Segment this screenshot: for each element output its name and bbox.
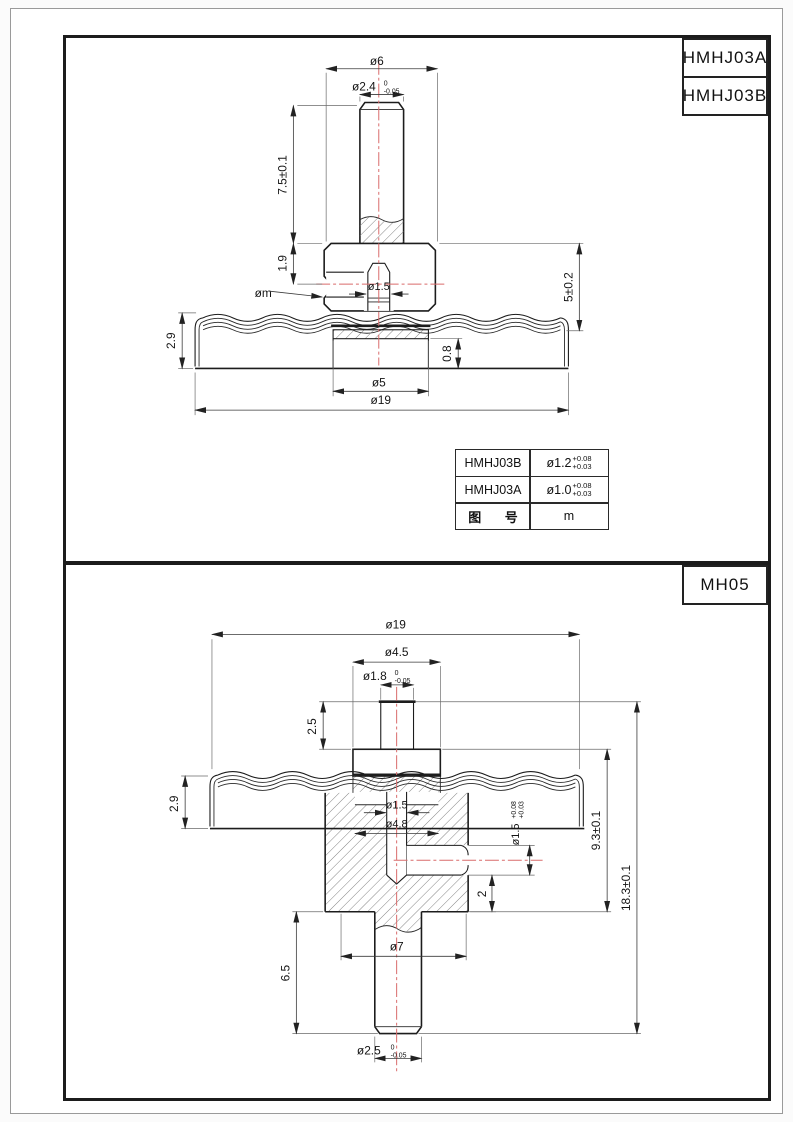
tol-lower: +0.03: [519, 801, 526, 819]
title-cell: HMHJ03A: [682, 38, 768, 78]
dim-tol-upper: 0: [395, 670, 399, 677]
stem: [360, 103, 404, 244]
dim-tol-lower: -0.05: [391, 1052, 407, 1059]
title-block-top: HMHJ03A HMHJ03B: [682, 40, 768, 116]
dim-label-h65: 6.5: [278, 965, 292, 982]
dim-label-h08: 0.8: [440, 345, 454, 362]
dim-label-h25: 2.5: [305, 718, 319, 735]
table-cell-dim: ø1.0+0.08+0.03: [529, 476, 609, 504]
side-hole: [326, 272, 367, 297]
corrugated-disc: [195, 314, 568, 368]
dim-label-dia18: ø1.8: [363, 669, 387, 683]
tol-upper: +0.08: [511, 801, 518, 819]
dim-label-dia6: ø6: [370, 54, 384, 68]
dim-label-h75: 7.5±0.1: [275, 155, 289, 195]
dim-label-h29: 2.9: [164, 332, 178, 349]
flange-body: [324, 243, 435, 310]
dim-label-h183: 18.3±0.1: [619, 865, 633, 912]
tol-lower: +0.03: [573, 463, 592, 471]
title-cell: HMHJ03B: [682, 76, 768, 116]
tolerance-stack: +0.08+0.03: [573, 455, 592, 471]
dim-label-dia19: ø19: [385, 617, 406, 631]
dim-label-dia5: ø5: [372, 375, 386, 389]
dim-value: ø1.2: [547, 456, 572, 470]
table-cell-part: HMHJ03A: [455, 476, 531, 504]
dim-label-dia19: ø19: [370, 393, 391, 407]
dim-label-dia45: ø4.5: [385, 645, 409, 659]
dim-tol-upper: 0: [384, 81, 388, 88]
table-cell-dim: ø1.2+0.08+0.03: [529, 449, 609, 477]
drawing-mh05-view: ø19 ø4.5 ø1.8 0 -0.05 2.5 2.9 ø: [66, 565, 768, 1098]
dim-label-dia-m: øm: [255, 286, 272, 300]
dim-value: ø1.5: [510, 824, 522, 846]
dim-label-dia15: ø1.5: [386, 800, 408, 812]
tolerance-stack: +0.08+0.03: [573, 482, 592, 498]
dim-label-dia25: ø2.5: [357, 1043, 381, 1057]
drawing-hmhj03-view: ø6 ø2.4 0 -0.05 7.5±0.1 1.9 øm ø1.5: [66, 38, 768, 561]
table-cell-header: 图 号: [455, 502, 531, 530]
section-hmhj03: HMHJ03A HMHJ03B HMHJ03B ø1.2+0.08+0.03 H…: [63, 35, 771, 563]
table-cell-header-dim: m: [529, 502, 609, 530]
dim-tol-upper: 0: [391, 1044, 395, 1051]
table-cell-part: HMHJ03B: [455, 449, 531, 477]
dim-label-dia7: ø7: [390, 939, 404, 953]
dim-label-h5: 5±0.2: [561, 272, 575, 302]
dim-label-h2: 2: [475, 890, 489, 897]
section-mh05: MH05: [63, 561, 771, 1101]
dim-tol-lower: -0.05: [384, 89, 400, 96]
dim-label-dia15: ø1.5: [368, 281, 390, 293]
dim-label-h19: 1.9: [275, 255, 289, 272]
dim-label-dia48: ø4.8: [386, 819, 408, 831]
hub: [333, 330, 428, 369]
spec-table: HMHJ03B ø1.2+0.08+0.03 HMHJ03A ø1.0+0.08…: [456, 450, 608, 530]
dim-tol-lower: -0.05: [395, 678, 411, 685]
dim-label-h93: 9.3±0.1: [589, 810, 603, 850]
title-cell: MH05: [682, 565, 768, 605]
tol-lower: +0.03: [573, 490, 592, 498]
title-block-bottom: MH05: [682, 567, 768, 605]
sheet-border: HMHJ03A HMHJ03B HMHJ03B ø1.2+0.08+0.03 H…: [10, 8, 783, 1114]
dim-value: ø1.0: [547, 483, 572, 497]
drawing-sheet: HMHJ03A HMHJ03B HMHJ03B ø1.2+0.08+0.03 H…: [0, 0, 793, 1122]
dim-label-dia24: ø2.4: [352, 80, 376, 94]
dim-label-h29: 2.9: [167, 795, 181, 812]
dim-label-dia15-side: ø1.5 +0.08 +0.03: [510, 801, 526, 845]
